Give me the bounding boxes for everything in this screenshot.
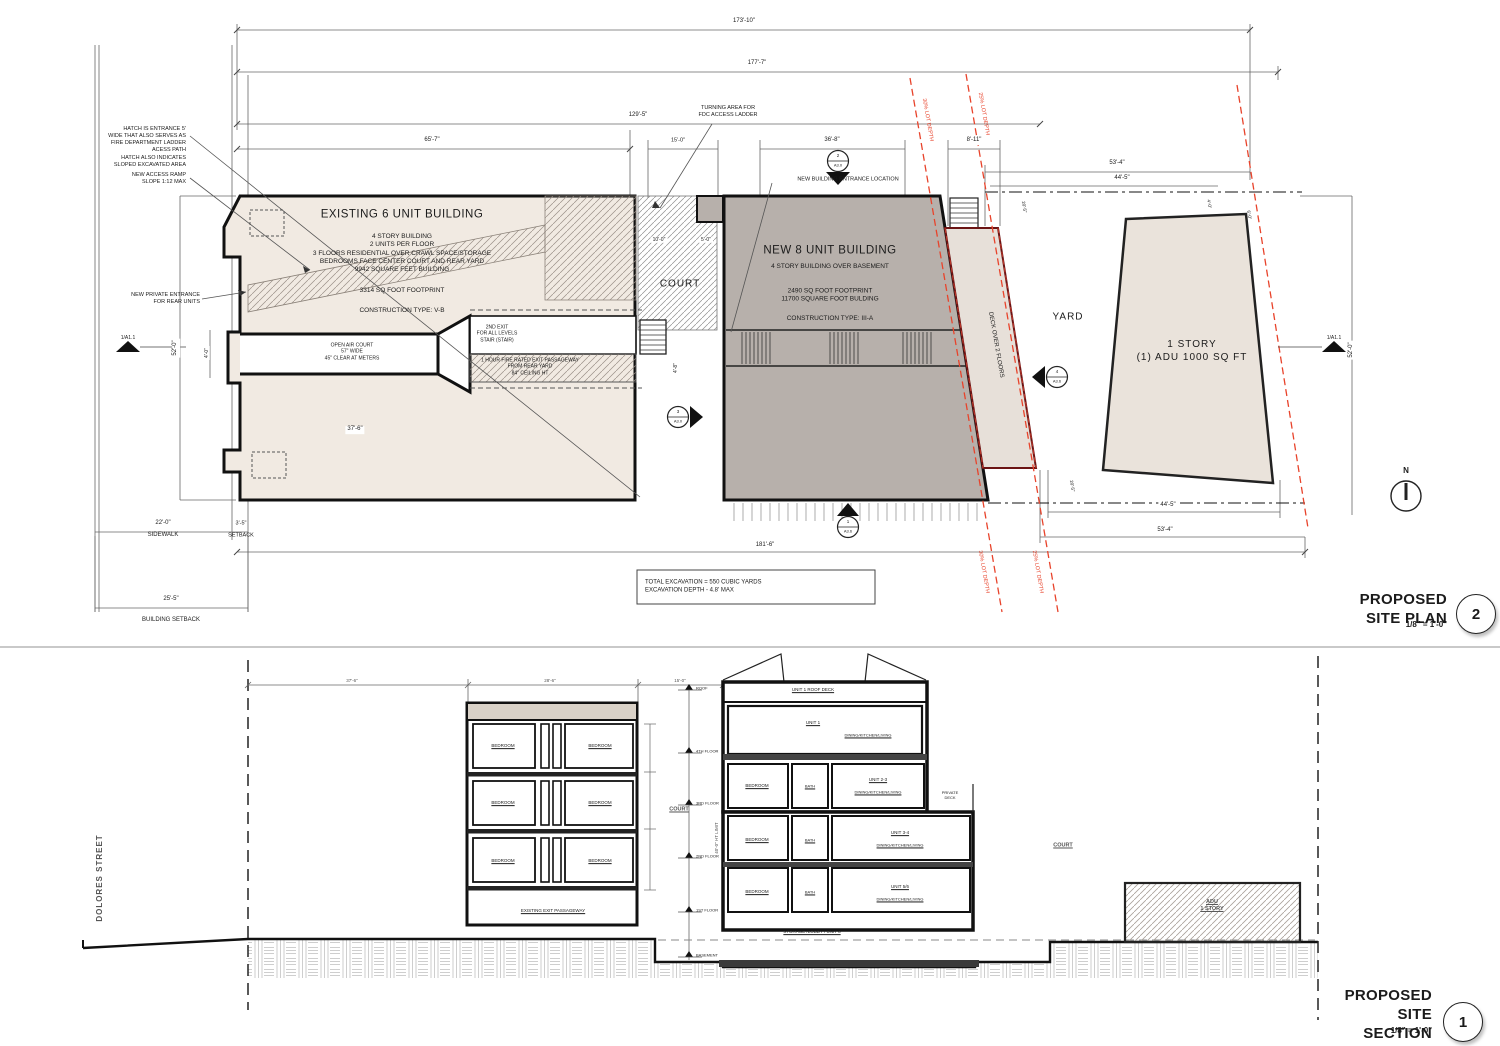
existing-building-title: EXISTING 6 UNIT BUILDING: [321, 208, 484, 223]
adu-label: 1 STORY (1) ADU 1000 SQ FT: [1137, 339, 1248, 365]
second-exit-note: 2ND EXIT FOR ALL LEVELS STAIR (STAIR): [477, 324, 518, 343]
unit1-label: UNIT 1: [806, 720, 820, 726]
existing-passageway-label: EXISTING EXIT PASSAGEWAY: [521, 908, 585, 914]
bath-label: BATH: [805, 783, 815, 788]
dim-right-top2: 44'-5": [1112, 175, 1131, 183]
new-building-notch: [697, 196, 723, 222]
dim-overall-top2: 177'-7": [746, 60, 769, 68]
dim-right-bottom: 44'-5": [1158, 502, 1177, 510]
dim-left-run: 129'-5": [627, 112, 650, 120]
dim-depth-right: 52'-0": [1348, 340, 1356, 359]
new-entrance-note: NEW BUILDING ENTRANCE LOCATION: [797, 176, 898, 183]
view-marker-3: [668, 406, 704, 428]
bedroom-label: BEDROOM: [588, 743, 611, 749]
street-label: DOLORES STREET: [95, 834, 105, 921]
unit34-label: UNIT 3-4: [891, 830, 909, 836]
bedroom-label: BEDROOM: [491, 858, 514, 864]
dim-overall-top: 173'-10": [731, 18, 757, 26]
marker-2-sheet: A3.0: [834, 162, 842, 167]
section-dim-2: 28'-6": [542, 678, 557, 684]
dim-new-width: 36'-8": [822, 137, 841, 145]
section-dim-3: 15'-0": [672, 678, 687, 684]
corner-hatch: [545, 196, 636, 300]
level-roof: ROOF: [696, 685, 708, 690]
section-number-badge: 1: [1443, 1002, 1483, 1042]
section-dims: [245, 679, 726, 703]
dim-court-width: 15'-0": [669, 137, 687, 144]
dim-gap: 8'-11": [965, 137, 984, 145]
site-plan-drawing: [0, 0, 1500, 648]
dim-court-4-8: 4'-8": [673, 361, 679, 375]
dkl-label: DINING/KITCHEN/LIVING: [845, 732, 892, 737]
building-setback-label: BUILDING SETBACK: [142, 617, 200, 625]
new-building-title: NEW 8 UNIT BUILDING: [763, 244, 896, 259]
dim-existing-width: 65'-7": [422, 137, 441, 145]
level-dimension-string: [678, 684, 702, 960]
passageway-note: 1 HOUR FIRE RATED EXIT PASSAGEWAY FROM R…: [481, 357, 579, 376]
plan-number-badge: 2: [1456, 594, 1496, 634]
bedroom-label: BEDROOM: [491, 800, 514, 806]
sidewalk-label: SIDEWALK: [148, 532, 179, 540]
section-scale: 1/8" = 1'-0": [1391, 1026, 1432, 1036]
hatch-note-2: HATCH ALSO INDICATES SLOPED EXCAVATED AR…: [114, 155, 186, 169]
dim-recess: 4'-0": [204, 346, 210, 360]
bedroom-label: BEDROOM: [491, 743, 514, 749]
level-3rd: 3RD FLOOR: [696, 800, 719, 805]
existing-building-footprint: 3314 SQ FOOT FOOTPRINT: [360, 287, 445, 295]
bedroom-label: BEDROOM: [745, 837, 768, 843]
dim-court-5: 5'-0": [699, 237, 713, 243]
site-section-drawing: [0, 648, 1500, 1046]
section-ref-right-label: 1/A1.1: [1327, 335, 1341, 341]
north-arrow-icon: [1391, 481, 1421, 511]
marker-3-sheet: A3.0: [674, 418, 682, 423]
ramp-note: NEW ACCESS RAMP SLOPE 1:12 MAX: [132, 172, 186, 186]
dim-lot-bottom: 181'-6": [754, 542, 777, 550]
storage-label: STORAGE /LOBBY / UNIT 8: [783, 929, 840, 935]
dim-building-setback: 25'-5": [163, 596, 178, 604]
excavation-note: TOTAL EXCAVATION = 550 CUBIC YARDS EXCAV…: [645, 579, 762, 594]
existing-building-construction: CONSTRUCTION TYPE: V-B: [359, 307, 444, 315]
drawing-sheet: 173'-10" 177'-7" 129'-5" TURNING AREA FO…: [0, 0, 1500, 1046]
ground-hatch: [248, 939, 1318, 978]
bedroom-label: BEDROOM: [588, 800, 611, 806]
dim-right-bottom2: 53'-4": [1155, 527, 1174, 535]
height-limit-label: 40'-0" HT LIMIT: [714, 822, 720, 853]
marker-1-sheet: A3.6: [844, 528, 852, 533]
plan-scale: 1/8" = 1'-0": [1406, 620, 1447, 630]
private-entrance-note: NEW PRIVATE ENTRANCE FOR REAR UNITS: [131, 292, 200, 306]
dkl-label: DINING/KITCHEN/LIVING: [877, 896, 924, 901]
unit23-label: UNIT 2-3: [869, 777, 887, 783]
new-building-details: 2490 SQ FOOT FOOTPRINT 11700 SQUARE FOOT…: [781, 288, 878, 305]
section-dim-1: 37'-6": [344, 678, 359, 684]
private-deck-label: PRIVATE DECK: [942, 790, 959, 800]
panel-divider: [0, 646, 1500, 648]
bedroom-label: BEDROOM: [745, 783, 768, 789]
open-air-court-note: OPEN AIR COURT 57" WIDE 45" CLEAR AT MET…: [325, 342, 380, 361]
existing-building-section: [467, 703, 656, 925]
court-stair: [640, 320, 666, 354]
marker-4-sheet: A3.6: [1053, 378, 1061, 383]
bedroom-label: BEDROOM: [588, 858, 611, 864]
view-marker-4: [1032, 366, 1068, 388]
marker-2-number: 2: [837, 153, 840, 159]
unit56-label: UNIT 5/6: [891, 884, 909, 890]
dim-court-open: 37'-6": [345, 426, 364, 434]
section-court-right-label: COURT: [1053, 842, 1073, 849]
bedroom-label: BEDROOM: [745, 889, 768, 895]
hatch-note: HATCH IS ENTRANCE 5' WIDE THAT ALSO SERV…: [108, 126, 186, 154]
roof-deck-label: UNIT 1 ROOF DECK: [792, 687, 834, 693]
entry-stair: [950, 198, 978, 228]
yard-label: YARD: [1052, 312, 1083, 325]
dim-setback: 3'-5": [236, 520, 247, 527]
dim-sidewalk: 22'-0": [155, 520, 170, 528]
new-building-construction: CONSTRUCTION TYPE: III-A: [787, 315, 874, 323]
setback-label: SETBACK: [228, 532, 254, 539]
level-4th: 4TH FLOOR: [696, 748, 718, 753]
dim-court-10: 10'-0": [651, 237, 668, 243]
new-building-subtitle: 4 STORY BUILDING OVER BASEMENT: [771, 263, 889, 271]
marker-4-number: 4: [1056, 369, 1059, 375]
marker-1-number: 1: [847, 519, 850, 525]
dim-depth-left: 52'-0": [172, 338, 180, 357]
dkl-label: DINING/KITCHEN/LIVING: [877, 842, 924, 847]
level-2nd: 2ND FLOOR: [696, 853, 719, 858]
section-court-label: COURT: [669, 806, 689, 813]
section-ref-left-label: 1/A1.1: [121, 335, 135, 341]
bath-label: BATH: [805, 889, 815, 894]
plan-number: 2: [1472, 606, 1480, 623]
marker-3-number: 3: [677, 409, 680, 415]
level-basement: BASEMENT: [696, 952, 718, 957]
bath-label: BATH: [805, 837, 815, 842]
section-number: 1: [1459, 1014, 1467, 1031]
level-1st: 1ST FLOOR: [696, 907, 718, 912]
north-label: N: [1403, 466, 1409, 476]
dim-right-top: 53'-4": [1107, 160, 1126, 168]
section-adu-label: ADU 1 STORY: [1200, 899, 1223, 913]
turning-area-note: TURNING AREA FOR FDC ACCESS LADDER: [699, 105, 758, 119]
dkl-label: DINING/KITCHEN/LIVING: [855, 789, 902, 794]
court-label: COURT: [660, 279, 700, 292]
existing-building-details: 4 STORY BUILDING 2 UNITS PER FLOOR 3 FLO…: [313, 233, 491, 275]
section-ref-right: [1278, 341, 1346, 352]
